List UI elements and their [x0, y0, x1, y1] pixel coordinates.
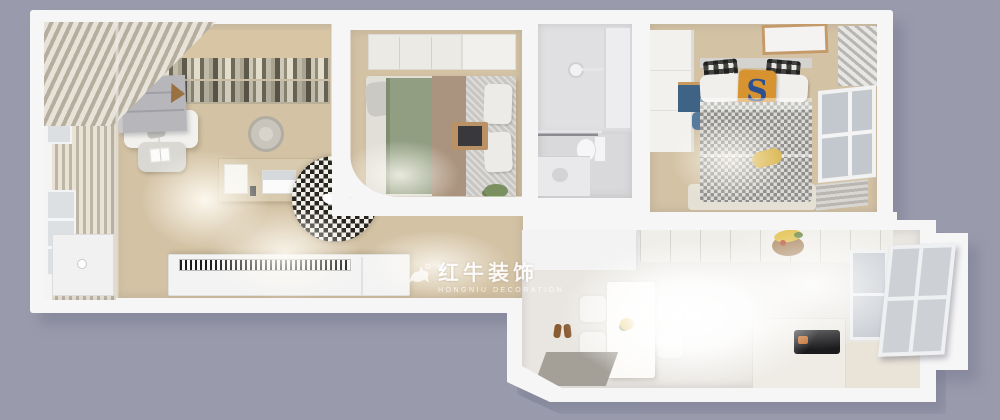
piano-keyboard [179, 259, 351, 271]
watermark-brand: 红牛装饰 [438, 257, 564, 287]
dining-chair [655, 330, 685, 360]
laptop [262, 170, 296, 194]
dining-chair [578, 294, 608, 324]
radiator [816, 179, 868, 210]
cooktop [794, 330, 840, 354]
bed [366, 76, 516, 196]
bull-icon [406, 262, 432, 288]
watermark-latin: HONGNIU DECORATION [438, 287, 564, 294]
wall-shelf [604, 28, 630, 128]
mirror-edge [538, 132, 598, 136]
watermark-text: 红牛装饰 HONGNIU DECORATION [438, 257, 564, 294]
storage-cabinet [52, 234, 114, 296]
sink-basin [550, 166, 570, 184]
dining-table [607, 282, 655, 378]
slipper [563, 324, 571, 339]
kids-bed: S [700, 58, 812, 210]
pillow [483, 84, 512, 125]
watermark: 红牛装饰 HONGNIU DECORATION [406, 252, 576, 298]
room-master-bedroom [350, 30, 522, 198]
wardrobe [368, 34, 462, 70]
shelf-unit [462, 34, 516, 70]
piano-sideboard [168, 254, 410, 296]
green-blanket [386, 78, 432, 194]
slipper [553, 324, 562, 339]
pot [798, 336, 808, 344]
cabinet-knob [77, 259, 87, 269]
entry-door [878, 243, 956, 357]
dining-chair [655, 294, 685, 324]
breakfast-tray [452, 122, 488, 150]
office-chair [248, 116, 284, 152]
cabinet-seam [361, 257, 363, 295]
window [818, 85, 876, 183]
blanket-fold [700, 98, 812, 110]
room-bathroom [538, 24, 633, 198]
paper-stack [224, 164, 248, 194]
apple [780, 240, 786, 246]
leaf [794, 232, 803, 238]
flower-posy [620, 318, 634, 330]
laptop [458, 126, 482, 146]
floorplan-render: S [0, 0, 1000, 420]
room-kids-bedroom: S [650, 24, 877, 212]
room-dining-kitchen [522, 230, 920, 388]
plant [484, 184, 508, 198]
ceiling-panel [761, 24, 828, 55]
open-book [149, 147, 170, 163]
desk-item [250, 186, 256, 196]
lattice-screen [838, 26, 877, 86]
